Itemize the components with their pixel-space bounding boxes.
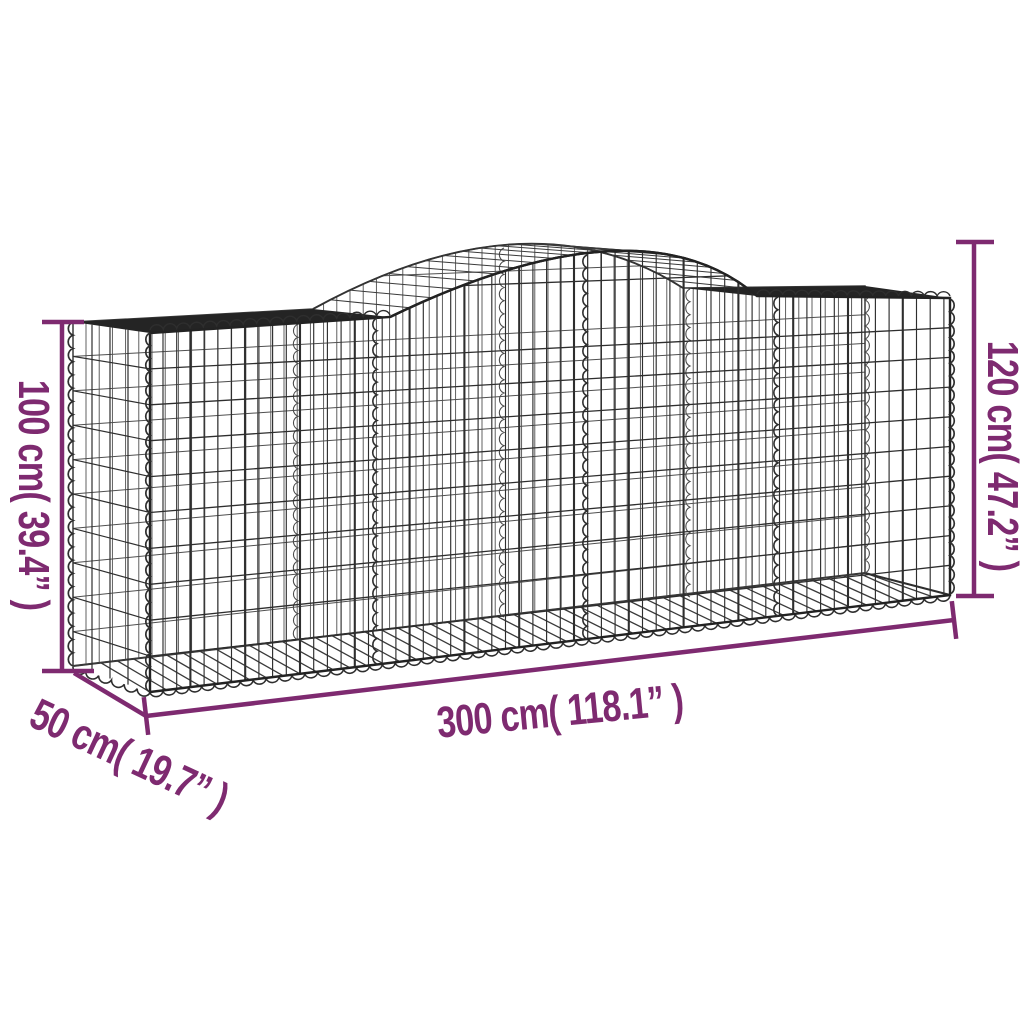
- basket-top-face-bands: [73, 286, 950, 333]
- dimension-label-height-right: 120 cm( 47.2” ): [977, 341, 1024, 572]
- dimension-label-height-left: 100 cm( 39.4” ): [8, 380, 58, 611]
- product-dimension-diagram: 100 cm( 39.4” ) 120 cm( 47.2” ) 300 cm( …: [0, 0, 1024, 1024]
- gabion-basket-wireframe: [0, 0, 1024, 1024]
